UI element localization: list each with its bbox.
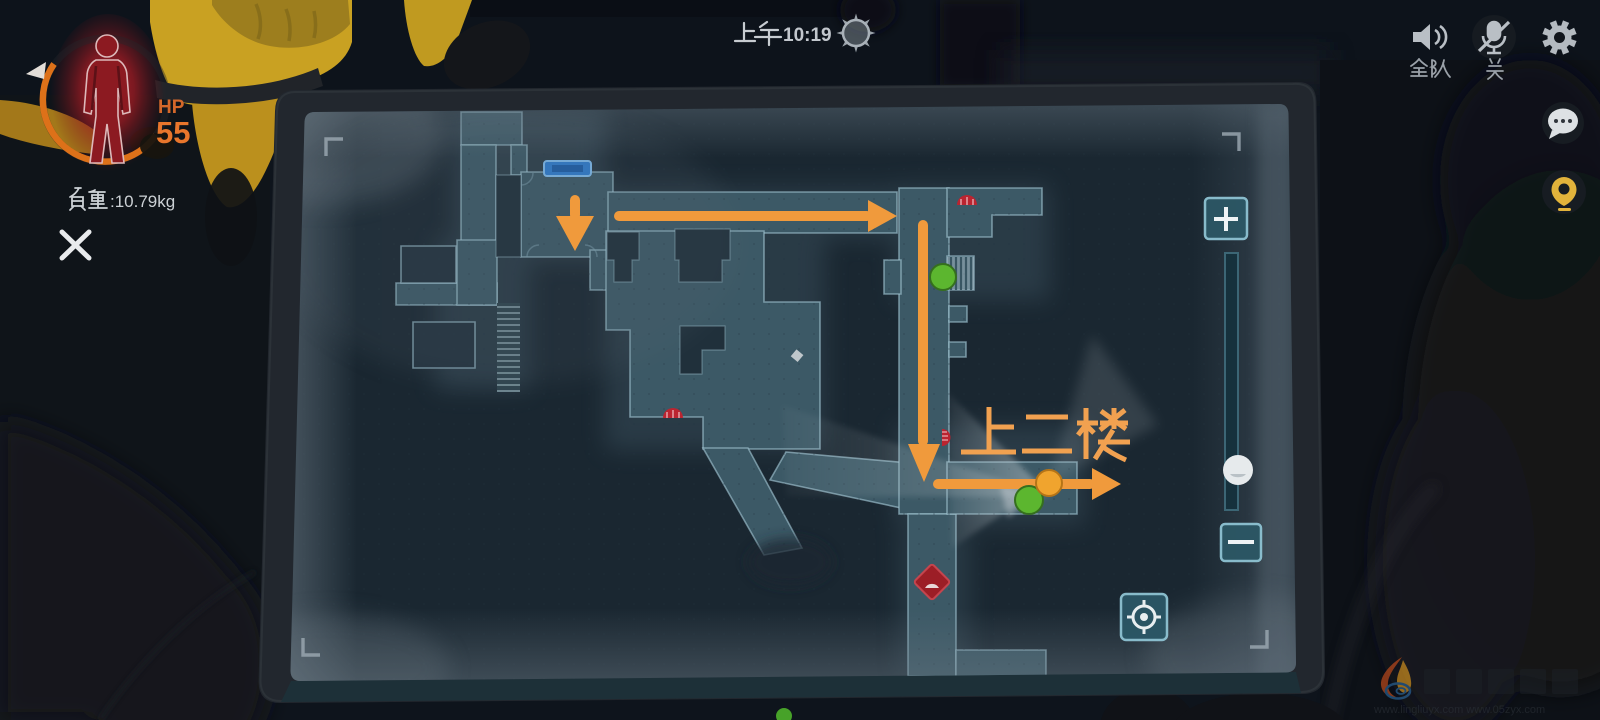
svg-text::10.79kg: :10.79kg [110, 192, 175, 211]
svg-text:www.lingliuyx.com www.05zyx.c: www.lingliuyx.com www.05zyx.com [1373, 704, 1545, 716]
svg-text:10:19: 10:19 [783, 25, 832, 46]
svg-text:55: 55 [156, 115, 190, 150]
